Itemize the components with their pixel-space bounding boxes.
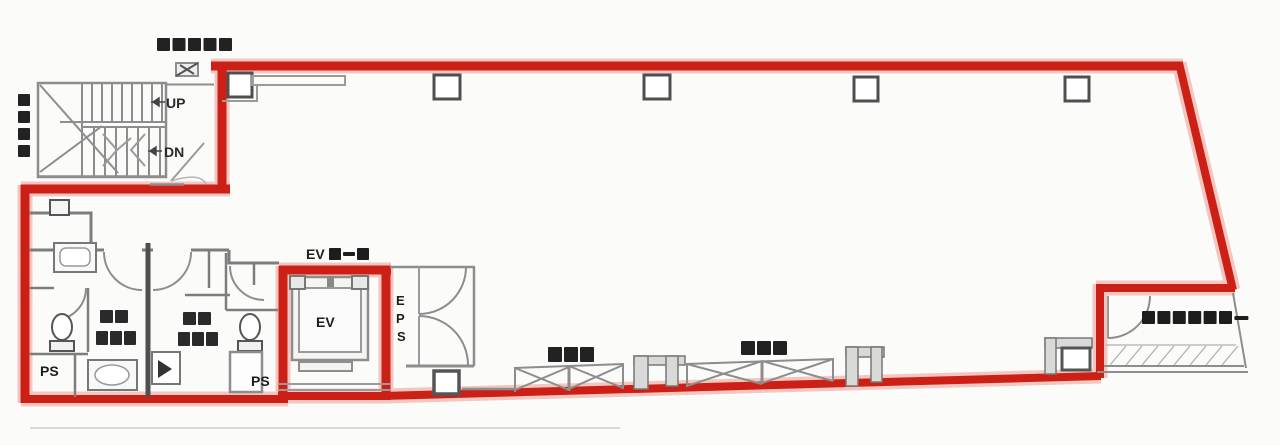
svg-text:UP: UP: [166, 95, 185, 111]
svg-text:EV: EV: [306, 246, 325, 262]
svg-text:E: E: [396, 293, 405, 308]
svg-text:DN: DN: [164, 144, 184, 160]
svg-text:PS: PS: [40, 363, 59, 379]
svg-text:PS: PS: [251, 373, 270, 389]
svg-text:EV: EV: [316, 314, 335, 330]
svg-text:S: S: [397, 329, 406, 344]
svg-text:P: P: [396, 311, 405, 326]
